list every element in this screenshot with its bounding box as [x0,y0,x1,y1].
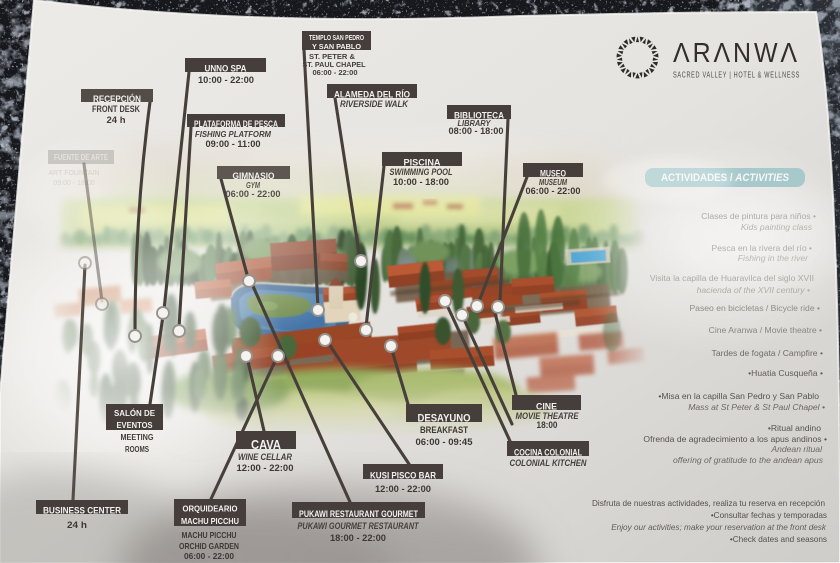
svg-text:•Misa en la capilla San Pedro: •Misa en la capilla San Pedro y San Pabl… [658,391,819,401]
svg-text:KUSI PISCO BAR: KUSI PISCO BAR [370,470,437,480]
svg-text:09:00 - 11:00: 09:00 - 11:00 [206,139,261,149]
svg-text:Andean ritual: Andean ritual [770,444,823,454]
svg-text:09:00 - 18:00: 09:00 - 18:00 [53,180,94,187]
svg-text:•Ritual andino: •Ritual andino [768,423,821,433]
svg-text:•Check dates and seasons: •Check dates and seasons [730,535,827,544]
svg-text:Paseo en bicicletas / Bicycle: Paseo en bicicletas / Bicycle ride • [689,303,820,313]
svg-text:PUKAWI GOURMET RESTAURANT: PUKAWI GOURMET RESTAURANT [298,521,420,531]
svg-text:hacienda of the XVII century: hacienda of the XVII century • [697,285,810,295]
svg-text:MEETING: MEETING [121,432,154,442]
svg-text:Fishing in the river: Fishing in the river [738,253,809,263]
svg-text:Cine Aranwa / Movie theatre •: Cine Aranwa / Movie theatre • [709,325,822,335]
svg-text:06:00 - 09:45: 06:00 - 09:45 [416,437,474,448]
svg-text:24 h: 24 h [67,520,87,530]
svg-text:Disfruta de nuestras actividad: Disfruta de nuestras actividades, realiz… [592,499,825,508]
svg-text:Mass at St Peter & St Paul Cha: Mass at St Peter & St Paul Chapel • [688,402,825,412]
svg-text:COCINA COLONIAL: COCINA COLONIAL [514,447,583,457]
svg-text:06:00 - 22:00: 06:00 - 22:00 [526,186,581,196]
svg-text:12:00 - 22:00: 12:00 - 22:00 [237,463,294,474]
svg-text:Pesca en la rivera del río •: Pesca en la rivera del río • [712,243,812,253]
svg-text:FUENTE DE ARTE: FUENTE DE ARTE [54,153,108,162]
svg-text:10:00 - 18:00: 10:00 - 18:00 [393,176,449,187]
svg-text:CAVA: CAVA [251,438,281,452]
svg-text:CINE: CINE [536,401,557,411]
svg-text:UNNO SPA: UNNO SPA [205,64,248,74]
svg-text:24 h: 24 h [107,115,126,125]
svg-text:PLATAFORMA DE PESCA: PLATAFORMA DE PESCA [194,119,279,129]
svg-text:06:00 - 22:00: 06:00 - 22:00 [184,551,234,561]
svg-text:SALÓN DE: SALÓN DE [114,407,155,418]
svg-text:BREAKFAST: BREAKFAST [420,425,468,436]
svg-text:WINE CELLAR: WINE CELLAR [238,452,292,462]
svg-text:RIVERSIDE WALK: RIVERSIDE WALK [340,99,409,109]
svg-text:Ofrenda de agradecimiento a lo: Ofrenda de agradecimiento a los apus and… [643,434,827,444]
svg-text:06:00 - 22:00: 06:00 - 22:00 [226,189,281,199]
svg-text:10:00 - 22:00: 10:00 - 22:00 [198,74,254,85]
svg-text:PUKAWI RESTAURANT GOURMET: PUKAWI RESTAURANT GOURMET [299,509,419,519]
svg-text:18:00 - 22:00: 18:00 - 22:00 [330,532,386,543]
svg-text:Visita la capilla de Huaravilc: Visita la capilla de Huaravilca del sigl… [650,273,814,283]
svg-text:Y SAN PABLO: Y SAN PABLO [312,42,361,51]
svg-text:DESAYUNO: DESAYUNO [418,413,471,425]
svg-text:TEMPLO SAN PEDRO: TEMPLO SAN PEDRO [309,33,364,42]
svg-text:EVENTOS: EVENTOS [117,420,153,430]
svg-text:ΛRΛNWΛ: ΛRΛNWΛ [673,37,800,68]
svg-text:BUSINESS CENTER: BUSINESS CENTER [43,506,122,516]
svg-text:Tardes de fogata / Campfire •: Tardes de fogata / Campfire • [712,348,823,358]
svg-text:COLONIAL KITCHEN: COLONIAL KITCHEN [510,458,588,468]
svg-text:ORQUIDEARIO: ORQUIDEARIO [183,503,238,513]
svg-text:ORCHID GARDEN: ORCHID GARDEN [179,541,239,551]
svg-text:•Consultar fechas y temporadas: •Consultar fechas y temporadas [711,511,827,520]
svg-text:MACHU PICCHU: MACHU PICCHU [181,516,239,526]
svg-text:offering of gratitude to the a: offering of gratitude to the andean apus [673,455,824,465]
svg-text:12:00 - 22:00: 12:00 - 22:00 [375,483,431,494]
svg-text:Clases de pintura para niños: Clases de pintura para niños • [701,211,816,221]
svg-text:FISHING PLATFORM: FISHING PLATFORM [195,129,272,139]
svg-text:Kids painting class: Kids painting class [741,222,813,232]
svg-text:SACRED VALLEY | HOTEL & WELLNE: SACRED VALLEY | HOTEL & WELLNESS [673,71,800,80]
svg-text:FRONT DESK: FRONT DESK [92,104,141,114]
svg-text:RECEPCIÓN: RECEPCIÓN [93,93,141,104]
svg-text:Enjoy our activities; make you: Enjoy our activities; make your reservat… [611,523,827,532]
svg-text:18:00: 18:00 [537,420,558,430]
svg-text:06:00 - 22:00: 06:00 - 22:00 [313,68,358,77]
svg-text:ROOMS: ROOMS [125,444,149,454]
svg-text:•Huatia Cusqueña •: •Huatia Cusqueña • [748,368,823,378]
svg-text:ART FOUNTAIN: ART FOUNTAIN [49,170,100,177]
svg-text:08:00 - 18:00: 08:00 - 18:00 [449,126,504,136]
svg-text:MACHU PICCHU: MACHU PICCHU [182,530,237,540]
